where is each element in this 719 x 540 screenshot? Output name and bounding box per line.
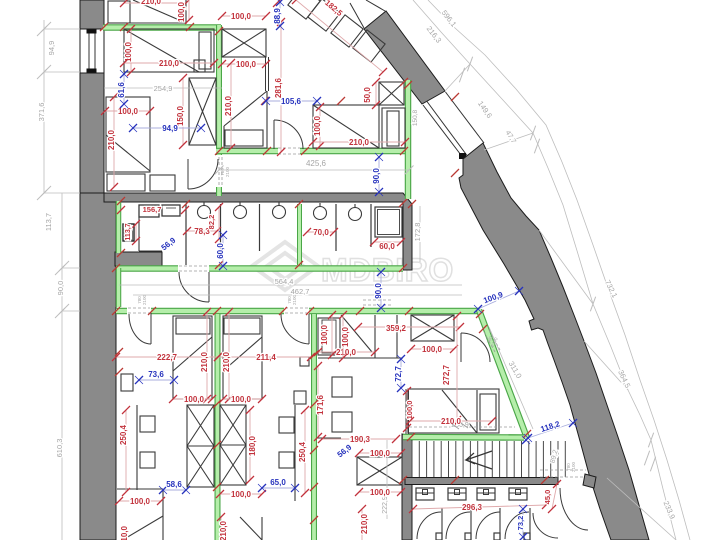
svg-text:462,7: 462,7 <box>291 287 310 296</box>
svg-text:50,0: 50,0 <box>363 87 372 103</box>
svg-text:210,0: 210,0 <box>336 348 357 357</box>
svg-text:272,7: 272,7 <box>442 364 451 385</box>
svg-text:281,6: 281,6 <box>274 77 283 98</box>
svg-text:94,9: 94,9 <box>47 41 56 56</box>
svg-text:211,4: 211,4 <box>256 353 276 362</box>
svg-text:150,0: 150,0 <box>176 105 185 126</box>
svg-text:100,0: 100,0 <box>118 107 139 116</box>
svg-text:210,0: 210,0 <box>349 138 370 147</box>
svg-text:100,0: 100,0 <box>231 395 252 404</box>
svg-text:254,9: 254,9 <box>154 84 173 93</box>
svg-text:90,0: 90,0 <box>374 283 383 299</box>
svg-text:45,0: 45,0 <box>543 490 552 505</box>
svg-text:2100: 2100 <box>142 294 147 305</box>
svg-text:90,0: 90,0 <box>372 168 381 184</box>
svg-text:210,0: 210,0 <box>222 351 231 372</box>
svg-text:73,2: 73,2 <box>516 516 525 531</box>
svg-text:172,8: 172,8 <box>413 223 422 242</box>
svg-text:58,6: 58,6 <box>166 480 182 489</box>
svg-text:113,7: 113,7 <box>44 213 53 231</box>
svg-text:210,0: 210,0 <box>200 351 209 372</box>
svg-text:296,3: 296,3 <box>462 503 483 512</box>
svg-text:100,0: 100,0 <box>236 60 257 69</box>
svg-text:113,7: 113,7 <box>125 223 132 240</box>
svg-text:100,0: 100,0 <box>177 1 186 22</box>
svg-text:180,0: 180,0 <box>248 435 257 456</box>
svg-text:100,0: 100,0 <box>313 115 322 136</box>
svg-text:222,9: 222,9 <box>382 496 389 514</box>
svg-text:210,0: 210,0 <box>120 525 129 540</box>
svg-text:100,0: 100,0 <box>320 324 329 345</box>
svg-text:156,7: 156,7 <box>143 205 162 214</box>
svg-text:210,0: 210,0 <box>141 0 162 6</box>
svg-text:73,6: 73,6 <box>148 370 164 379</box>
svg-text:65,0: 65,0 <box>270 478 286 487</box>
svg-text:210,0: 210,0 <box>360 513 369 534</box>
svg-text:60,0: 60,0 <box>216 243 225 259</box>
svg-text:100,0: 100,0 <box>184 395 205 404</box>
svg-text:105,6: 105,6 <box>281 97 302 106</box>
svg-text:371,6: 371,6 <box>37 103 46 122</box>
svg-text:100,0: 100,0 <box>124 41 133 62</box>
svg-text:61,6: 61,6 <box>117 82 126 98</box>
svg-text:88,9: 88,9 <box>273 8 282 24</box>
svg-text:564,4: 564,4 <box>275 277 294 286</box>
svg-text:2100: 2100 <box>292 294 297 305</box>
svg-text:250,4: 250,4 <box>119 424 128 445</box>
svg-text:190,3: 190,3 <box>350 435 371 444</box>
svg-text:100,0: 100,0 <box>231 12 252 21</box>
svg-text:210,0: 210,0 <box>107 129 116 150</box>
svg-text:100,0: 100,0 <box>370 449 391 458</box>
svg-text:359,2: 359,2 <box>386 324 407 333</box>
svg-text:70,0: 70,0 <box>313 228 329 237</box>
svg-text:171,6: 171,6 <box>316 394 325 415</box>
svg-text:2100: 2100 <box>225 166 230 177</box>
svg-text:100,0: 100,0 <box>405 401 414 420</box>
svg-text:100,0: 100,0 <box>231 490 252 499</box>
svg-text:100,0: 100,0 <box>370 488 391 497</box>
svg-text:150,8: 150,8 <box>412 109 419 126</box>
svg-text:60,0: 60,0 <box>379 242 395 251</box>
svg-text:210,0: 210,0 <box>441 417 462 426</box>
svg-text:210,0: 210,0 <box>224 95 233 116</box>
svg-text:100,0: 100,0 <box>422 345 443 354</box>
svg-text:425,6: 425,6 <box>306 159 327 168</box>
svg-text:610,3: 610,3 <box>55 439 64 458</box>
svg-text:222,7: 222,7 <box>157 353 178 362</box>
svg-text:100,0: 100,0 <box>130 497 151 506</box>
svg-text:90,0: 90,0 <box>56 281 65 296</box>
svg-text:100,0: 100,0 <box>341 326 350 347</box>
svg-text:72,7: 72,7 <box>394 366 403 382</box>
svg-text:250,4: 250,4 <box>298 441 307 462</box>
svg-text:94,9: 94,9 <box>162 124 178 133</box>
svg-text:210,0: 210,0 <box>219 520 228 540</box>
svg-text:82,2: 82,2 <box>207 215 216 230</box>
svg-text:210,0: 210,0 <box>159 59 180 68</box>
svg-text:2100: 2100 <box>571 461 576 472</box>
